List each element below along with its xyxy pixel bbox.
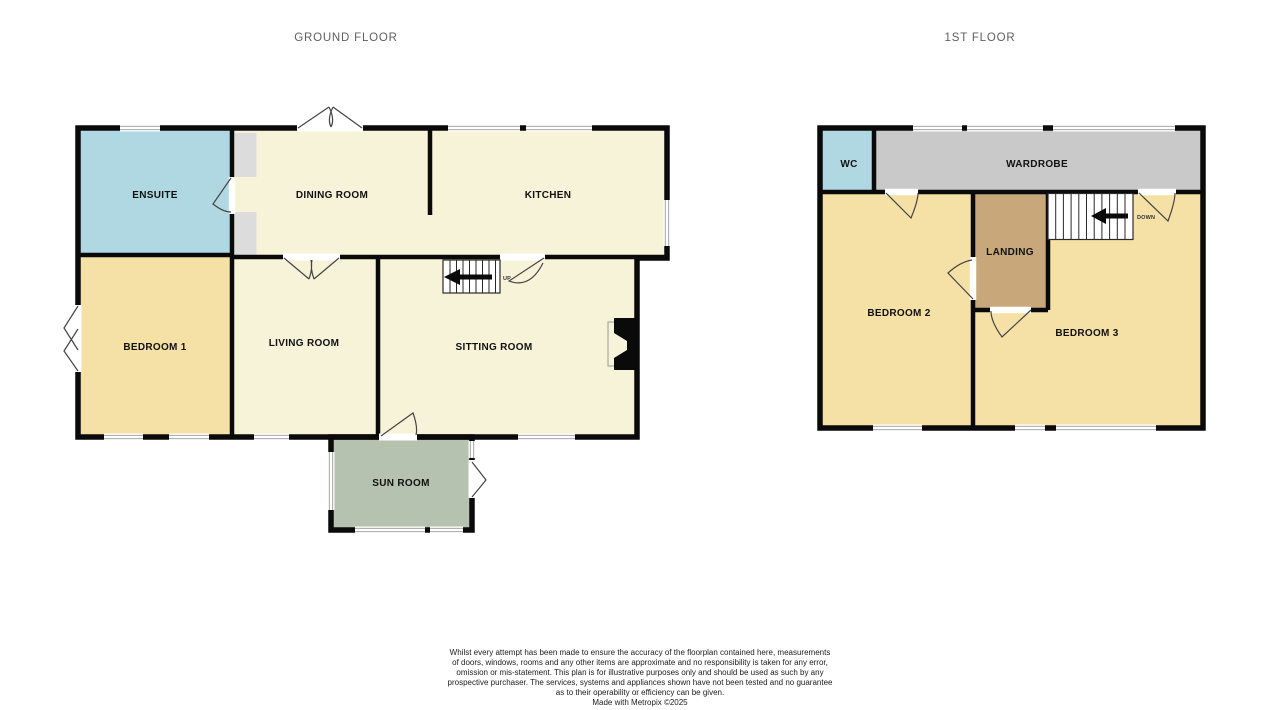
landing-label: LANDING [986,247,1034,258]
window-opening [328,452,335,510]
window-opening [120,125,160,132]
window-opening [967,125,1043,132]
disclaimer-line: as to their operability or efficiency ca… [0,688,1280,698]
door-opening [885,189,918,196]
window-opening [873,425,922,432]
window-opening [169,434,209,441]
window-opening [526,125,592,132]
window-opening [355,527,425,534]
door-opening [379,434,417,441]
door-opening [500,254,545,261]
stairs-down-label: DOWN [1137,215,1155,221]
first-floor-plan: DOWN WC WARDROBE LANDING BEDROOM 2 BEDRO… [820,125,1203,432]
dining-alcove-bottom [235,212,257,255]
window-opening [469,441,476,458]
door-opening [283,254,340,261]
window-opening [518,434,575,441]
disclaimer-line: omission or mis-statement. This plan is … [0,668,1280,678]
bedroom1-label: BEDROOM 1 [123,342,186,353]
dining-room-label: DINING ROOM [296,190,368,201]
disclaimer-line: prospective purchaser. The services, sys… [0,678,1280,688]
door-opening [1138,189,1176,196]
ground-floor-plan: UP ENSUITE DINING ROOM KITCHEN BEDROOM 1… [64,107,671,534]
door-opening [229,177,236,214]
window-opening [448,125,520,132]
bedroom2-label: BEDROOM 2 [867,308,930,319]
sun-room-label: SUN ROOM [372,478,429,489]
door-opening [75,305,82,372]
bedroom3-label: BEDROOM 3 [1055,328,1118,339]
wardrobe-label: WARDROBE [1006,159,1068,170]
ensuite-label: ENSUITE [132,190,177,201]
window-opening [104,434,143,441]
window-opening [1053,125,1175,132]
floorplan-canvas: UP ENSUITE DINING ROOM KITCHEN BEDROOM 1… [0,0,1280,640]
kitchen-label: KITCHEN [525,190,572,201]
sitting-room-label: SITTING ROOM [456,342,533,353]
disclaimer-line: Whilst every attempt has been made to en… [0,648,1280,658]
window-opening [430,527,463,534]
wc-label: WC [840,159,857,170]
window-opening [1015,425,1045,432]
door-opening [970,257,977,300]
living-room-label: LIVING ROOM [269,338,340,349]
window-opening [664,200,671,246]
disclaimer-line: of doors, windows, rooms and any other i… [0,658,1280,668]
window-opening [913,125,962,132]
stairs-up-label: UP [503,276,511,282]
door-opening [990,307,1031,314]
dining-alcove-top [235,133,257,177]
disclaimer: Whilst every attempt has been made to en… [0,648,1280,707]
window-opening [254,434,289,441]
metropix-credit: Made with Metropix ©2025 [0,698,1280,708]
window-opening [1056,425,1156,432]
